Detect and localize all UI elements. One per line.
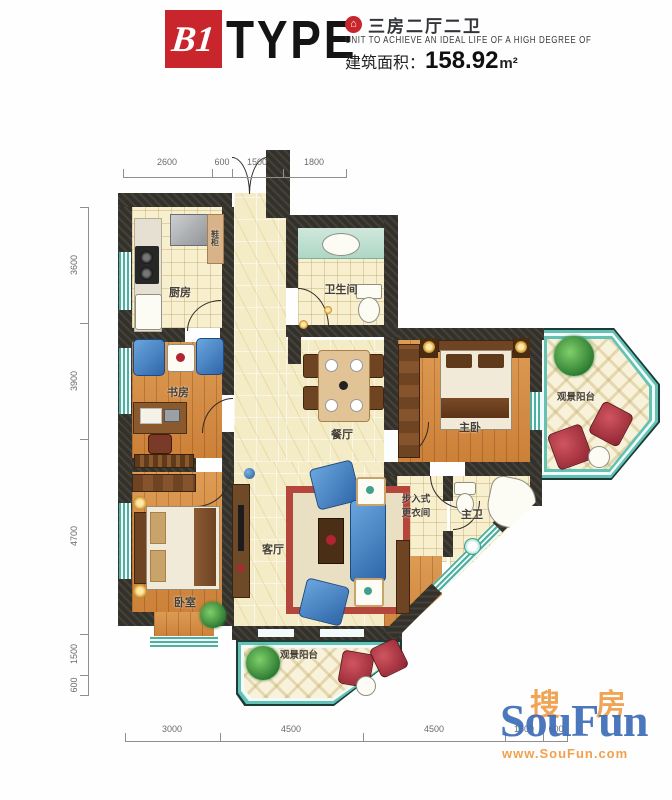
room-label-closet-1: 步入式	[402, 491, 431, 505]
pendant-lamp	[299, 320, 308, 329]
bottle-decor	[366, 486, 374, 494]
study-armchair	[133, 339, 165, 376]
room-label-closet-2: 更衣间	[402, 505, 431, 519]
burner	[140, 267, 153, 280]
kitchen-window	[119, 252, 131, 310]
dim-tick	[363, 733, 364, 742]
bottle-decor	[364, 587, 372, 595]
room-label-balcony-top: 观景阳台	[557, 389, 595, 403]
dim-label: 1500	[247, 157, 267, 167]
plate	[350, 399, 363, 412]
bookshelf	[134, 454, 194, 468]
coffee-table	[318, 518, 344, 564]
dim-tick	[123, 169, 124, 178]
tv-cabinet	[232, 484, 250, 598]
room-label-shoe-cabinet: 鞋柜	[210, 230, 221, 246]
dim-label: 1800	[304, 157, 324, 167]
pillow	[150, 512, 166, 544]
dim-label: 3600	[69, 255, 79, 275]
dim-label: 1500	[69, 644, 79, 664]
plant	[246, 646, 280, 680]
wall	[384, 215, 398, 340]
room-label-dining: 餐厅	[331, 426, 353, 442]
dining-table	[318, 350, 370, 422]
watermark-brand: SouFun	[500, 694, 647, 747]
dim-label: 600	[214, 157, 229, 167]
room-label-study: 书房	[167, 384, 189, 400]
dim-tick	[80, 675, 89, 676]
dim-label: 600	[69, 677, 79, 692]
wall	[465, 462, 542, 476]
dim-tick	[80, 695, 89, 696]
fridge	[170, 214, 208, 246]
bedroom-window	[119, 503, 131, 579]
balcony-table	[356, 676, 376, 696]
dim-tick	[125, 733, 126, 742]
dim-line-top	[123, 177, 347, 178]
wall	[530, 332, 542, 392]
room-label-bedroom: 卧室	[174, 594, 196, 610]
dim-tick	[212, 169, 213, 178]
room-label-guest-bath: 卫生间	[325, 281, 358, 297]
dim-tick	[80, 439, 89, 440]
dim-tick	[232, 169, 233, 178]
room-label-kitchen: 厨房	[169, 284, 191, 300]
wall	[286, 215, 398, 228]
vase	[244, 468, 255, 479]
wall	[286, 228, 298, 288]
pillow	[478, 354, 504, 368]
dim-label: 3000	[162, 724, 182, 734]
plate	[350, 359, 363, 372]
plate	[325, 399, 338, 412]
wall	[266, 150, 290, 218]
floor-drain	[324, 306, 332, 314]
kitchen-sink	[135, 294, 162, 330]
bed	[132, 496, 220, 596]
room-label-master-bath: 主卫	[461, 506, 483, 522]
study-armchair	[196, 338, 224, 375]
dim-tick	[346, 169, 347, 178]
dim-tick	[80, 207, 89, 208]
master-balcony-window	[530, 392, 542, 430]
dim-label: 4700	[69, 526, 79, 546]
bedside-lamp	[133, 496, 147, 510]
side-table	[354, 578, 384, 607]
dim-tick	[80, 323, 89, 324]
dim-line-left	[88, 207, 89, 695]
flower-decor	[176, 353, 185, 362]
watermark-url: www.SouFun.com	[502, 746, 628, 761]
sofa	[350, 500, 386, 582]
sliding-door-gap	[258, 629, 294, 637]
bedside-lamp	[423, 341, 435, 353]
dim-tick	[80, 634, 89, 635]
side-table	[356, 477, 386, 506]
room-label-balcony-bottom: 观景阳台	[280, 647, 318, 661]
soufun-watermark: 搜 房 SouFun www.SouFun.com	[500, 680, 665, 770]
nightstand	[420, 338, 438, 358]
toilet-bowl	[358, 297, 380, 323]
bedroom-bay-window	[150, 636, 218, 647]
pillow	[446, 354, 472, 368]
closet-cabinet	[396, 540, 410, 614]
dim-tick	[283, 169, 284, 178]
paper	[140, 408, 162, 424]
dim-tick	[220, 733, 221, 742]
wall	[288, 337, 301, 364]
blanket	[441, 398, 509, 418]
plant	[554, 336, 594, 376]
room-label-master-bedroom: 主卧	[459, 419, 481, 435]
nightstand	[512, 338, 530, 358]
wardrobe	[132, 474, 196, 492]
wall	[118, 193, 232, 207]
wall	[384, 462, 430, 476]
master-wardrobe	[398, 344, 420, 458]
pillow	[150, 550, 166, 582]
plant	[200, 602, 226, 628]
study-window	[119, 348, 131, 414]
decor-dot	[237, 565, 244, 572]
wall	[384, 340, 398, 430]
dim-label: 4500	[281, 724, 301, 734]
balcony-table	[588, 446, 610, 468]
stove	[135, 246, 159, 284]
bedside-lamp	[133, 584, 147, 598]
flower-decor	[326, 535, 336, 545]
blanket	[194, 508, 216, 586]
floorplan-page: B1 TYPE ⌂ 三房二厅二卫 UNIT TO ACHIEVE AN IDEA…	[0, 0, 672, 800]
bath-sink	[322, 233, 360, 256]
laptop	[164, 409, 180, 422]
bathtub	[483, 474, 540, 533]
wall	[222, 432, 234, 462]
dim-label: 2600	[157, 157, 177, 167]
wall	[118, 612, 154, 626]
dim-label: 4500	[424, 724, 444, 734]
burner	[140, 251, 153, 264]
centerpiece	[339, 381, 348, 390]
dim-label: 3900	[69, 371, 79, 391]
bedside-lamp	[515, 341, 527, 353]
room-label-living: 客厅	[262, 541, 284, 557]
study-side-table	[167, 344, 195, 372]
desk-chair	[148, 434, 172, 454]
master-bed	[438, 340, 512, 430]
sliding-door-gap	[320, 629, 364, 637]
stool	[464, 538, 481, 555]
plate	[325, 359, 338, 372]
floor-hallway	[234, 193, 286, 462]
tv	[238, 505, 244, 551]
desk	[133, 402, 187, 434]
